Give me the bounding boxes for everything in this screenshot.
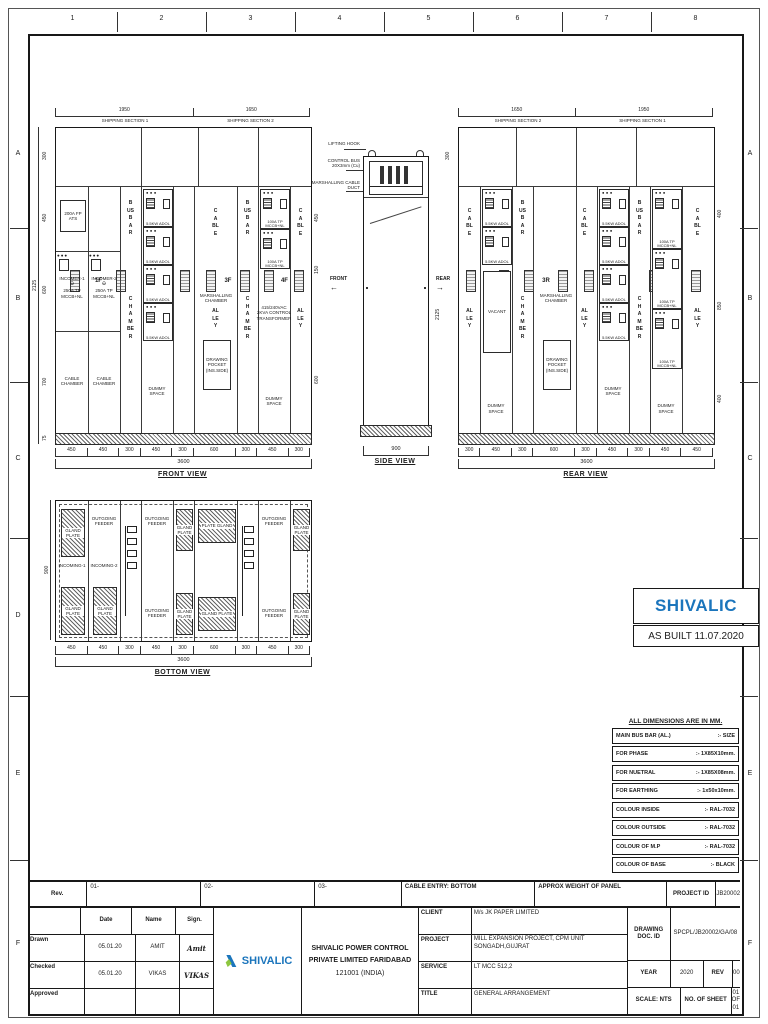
module-label: 5.5KW ADOL [145,298,171,302]
module-rating: 100A TP MCCB+NL [654,300,680,308]
logo-text: SHIVALIC [242,955,293,967]
grid-row-a-right: A [742,150,758,157]
project-row: PROJECT MILL EXPANSION PROJECT, CPM UNIT… [419,935,627,962]
company-line-2: PRIVATE LIMITED FARIDABAD [309,956,411,965]
front-total-width: 3600 [55,459,312,469]
drawn-row: Drawn 05.01.20 AMIT Amit [28,935,213,962]
rear-chamber-word-1: CHAMBER [519,296,526,341]
feeder-module: ●●● 5.5KW ADOL [143,303,173,341]
outgoing-feeder-label: OUTGOING FEEDER [90,509,118,533]
louver-icon [264,270,274,292]
side-view-title: SIDE VIEW [355,458,435,465]
as-built-box: AS BUILT 11.07.2020 [633,625,759,647]
sign-table: Date Name Sign. Drawn 05.01.20 AMIT Amit… [28,908,214,1014]
cable-entry-cell: CABLE ENTRY: BOTTOM [402,882,535,908]
louver-icon [180,270,190,292]
outgoing-feeder-label: OUTGOING FEEDER [260,601,288,625]
outgoing-feeder-label: OUTGOING FEEDER [143,601,171,625]
scale-row: SCALE: NTS NO. OF SHEET 01 OF 01 [628,988,740,1014]
incomer-1: ●●● INCOMER-1 ⎉ 250A TP MCCB+NL [57,253,87,329]
rear-busbar-word-2: BUSBAR [636,200,643,238]
grid-row-f-left: F [10,940,26,947]
lifting-hook-label: LIFTING HOOK [316,141,360,146]
grid-col-8: 8 [651,15,740,22]
louver-icon [691,270,701,292]
rear-drawing-pocket: DRAWING POCKET (INS.SIDE) [543,340,571,390]
front-chamber-word-2: CHAMBER [244,296,251,341]
incoming-1-label: INCOMING-1 [57,559,87,573]
spec-row: COLOUR INSIDE:- RAL-7032 [612,802,739,818]
rear-total-width: 3600 [458,459,715,469]
spec-row: COLOUR OF M.P:- RAL-7032 [612,839,739,855]
gland-plate: GLAND PLATE [176,593,193,635]
grid-row-c-left: C [10,455,26,462]
company-line-1: SHIVALIC POWER CONTROL [311,944,408,953]
front-arrow-icon: ← [330,284,338,292]
approx-weight-cell: APPROX WEIGHT OF PANEL [535,882,666,908]
gland-plate: GLAND PLATE [176,509,193,551]
feeder-module: ●●● 5.5KW ADOL [143,189,173,227]
company-logo-cell: SHIVALIC [214,908,302,1014]
gland-plate: GLAND PLATE [293,509,310,551]
side-view-frame [363,156,429,427]
front-busbar-word: BUSBAR [127,200,134,238]
bottom-view-title: BOTTOM VIEW [55,669,310,676]
drawing-sheet: 1 2 3 4 5 6 7 8 A B C D E F A B C D E F … [0,0,768,1024]
spec-row: COLOUR OUTSIDE:- RAL-7032 [612,820,739,836]
rear-view-title: REAR VIEW [458,471,713,478]
front-view-frame: 1F 2F 3F 4F 200A FP ATS [55,127,312,435]
incomer-1-rating: 250A TP MCCB+NL [57,288,87,298]
service-row: SERVICE LT MCC 512,2 [419,962,627,989]
grid-row-b-left: B [10,295,26,302]
module-label: 5.5KW ADOL [601,260,627,264]
title-block-main: Date Name Sign. Drawn 05.01.20 AMIT Amit… [28,906,740,1014]
vacant-box: VACANT [483,271,511,353]
cable-chamber-2: CABLE CHAMBER [89,331,119,431]
front-right-dim-150: 150 [314,250,320,290]
as-built-text: AS BUILT 11.07.2020 [648,631,744,642]
front-left-dim-700: 700 [42,330,48,433]
front-top-dim-2: 1650 [193,108,311,117]
rear-right-dim-400: 400 [717,185,723,243]
rear-busbar-word-1: BUSBAR [519,200,526,238]
front-cable-word-2: CABLE [297,208,304,238]
louver-icon [294,270,304,292]
doc-table: DRAWING DOC. ID SPCPL/JB20002/GA/08 YEAR… [628,908,740,1014]
checked-signature: VIKAS [180,962,213,988]
grid-col-1: 1 [28,15,117,22]
front-shipping-section-1: SHIPPING SECTION 1 [70,118,180,123]
rear-view-frame: 4R 3R 2R 1R CABLE ALLEY [458,127,715,435]
rear-dummy-space-1: DUMMY SPACE [482,386,510,431]
rear-top-dim-2: 1950 [575,108,714,117]
module-label: 5.5KW ADOL [145,222,171,226]
grid-row-b-right: B [742,295,758,302]
busbar-riser-icon [242,526,256,616]
sign-header: Sign. [176,908,213,934]
spec-title: ALL DIMENSIONS ARE IN MM. [612,718,739,725]
name-header: Name [132,908,176,934]
module-label: 5.5KW ADOL [145,336,171,340]
client-row: CLIENT M/s JK PAPER LIMITED [419,908,627,935]
ats-box: 200A FP ATS [60,200,86,232]
feeder-module: ●●● 100A TP MCCB+NL [652,309,682,369]
rev-02-cell: 02- [201,882,315,908]
rear-dummy-space-2: DUMMY SPACE [599,356,627,426]
module-label: 5.5KW ADOL [601,336,627,340]
module-label: 5.5KW ADOL [484,260,510,264]
rear-base-channel [458,433,715,445]
louver-icon [466,270,476,292]
project-id-value-cell: JB20002 [716,882,740,908]
front-top-dim-1: 1950 [55,108,193,117]
cable-chamber-1: CABLE CHAMBER [57,331,87,431]
marshalling-duct-label: MARSHALLING CABLE DUCT [310,180,360,191]
spec-row: COLOUR OF BASE:- BLACK [612,857,739,873]
grid-row-a-left: A [10,150,26,157]
spec-row: FOR EARTHING:- 1x50x10mm. [612,783,739,799]
feeder-module: ●●● 5.5KW ADOL [599,265,629,303]
grid-row-e-left: E [10,770,26,777]
module-rating: 100A TP MCCB+NL [654,360,680,368]
rear-left-dim-300: 300 [445,127,451,185]
feeder-module: ●●● 5.5KW ADOL [143,265,173,303]
marshalling-chamber-label: MARSHALLING CHAMBER [196,288,236,308]
grid-col-4: 4 [295,15,384,22]
incomer-2-rating: 250A TP MCCB+NL [89,288,119,298]
title-row: TITLE GENERAL ARRANGEMENT [419,989,627,1015]
feeder-module: ●●● 100A TP MCCB+NL [260,189,290,229]
front-left-dim-450: 450 [42,185,48,250]
feeder-module: ●●● 5.5KW ADOL [143,227,173,265]
rear-marshalling-label: MARSHALLING CHAMBER [536,288,576,308]
panel-id: 4F [281,278,288,284]
front-dummy-space-2: DUMMY SPACE [260,376,288,426]
grid-col-5: 5 [384,15,473,22]
grid-col-7: 7 [562,15,651,22]
module-label: 5.5KW ADOL [601,222,627,226]
spec-row: FOR PHASE:- 1X85X10mm. [612,746,739,762]
rear-top-dim-1: 1650 [458,108,575,117]
year-row: YEAR 2020 REV 00 [628,961,740,988]
plate-gland: PLATE GLAND [198,509,236,543]
module-label: 5.5KW ADOL [484,222,510,226]
outgoing-feeder-label: OUTGOING FEEDER [260,509,288,533]
front-overall-height: 2125 [32,127,39,444]
grid-col-2: 2 [117,15,206,22]
feeder-module: ●●● 5.5KW ADOL [482,189,512,227]
front-base-channel [55,433,312,445]
louver-icon [584,270,594,292]
spec-row: MAIN BUS BAR (AL.):- SIZE [612,728,739,744]
rear-alley-word-1: ALLEY [466,308,473,331]
revision-strip: Rev. 01- 02- 03- CABLE ENTRY: BOTTOM APP… [28,880,740,908]
approved-row: Approved [28,989,213,1015]
rear-alley-word-3: ALLEY [694,308,701,331]
module-rating: 100A TP MCCB+NL [262,220,288,228]
front-alley-word: ALLEY [212,308,219,331]
rear-right-dim-400b: 400 [717,368,723,430]
control-transformer-label: 415/240VAC 2KVA CONTROL TRANSFORMER [259,293,289,333]
outgoing-feeder-label: OUTGOING FEEDER [143,509,171,533]
brand-box: SHIVALIC [633,588,759,624]
front-view-title: FRONT VIEW [55,471,310,478]
incoming-2-label: INCOMING-2 [89,559,119,573]
panel-id: 3F [224,278,231,284]
gland-plate: GLAND PLATE [198,597,236,631]
rear-right-dim-850: 850 [717,243,723,368]
feeder-module: ●●● 5.5KW ADOL [599,303,629,341]
feeder-module: ●●● 100A TP MCCB+NL [652,249,682,309]
rear-shipping-section-1: SHIPPING SECTION 1 [580,118,705,123]
grid-row-c-right: C [742,455,758,462]
front-left-dim-75: 75 [42,431,48,445]
gland-plate: GLAND PLATE [61,587,85,635]
grid-col-6: 6 [473,15,562,22]
rear-chamber-word-2: CHAMBER [636,296,643,341]
company-name-cell: SHIVALIC POWER CONTROL PRIVATE LIMITED F… [302,908,419,1014]
project-id-label-cell: PROJECT ID [667,882,717,908]
gland-plate: GLAND PLATE [293,593,310,635]
checked-row: Checked 05.01.20 VIKAS VIKAS [28,962,213,989]
side-bottom-dim: 900 [363,446,429,456]
shivalic-logo-icon [223,953,239,969]
side-base-channel [360,425,432,437]
module-rating: 100A TP MCCB+NL [262,260,288,268]
spec-row: FOR NUETRAL:- 1X85X08mm. [612,765,739,781]
front-shipping-section-2: SHIPPING SECTION 2 [198,118,303,123]
module-label: 5.5KW ADOL [145,260,171,264]
rear-cable-word-2: CABLE [581,208,588,238]
bottom-left-dim-900: 900 [44,500,51,640]
incomer-2: ●●● INCOMER-2 ⎉ 250A TP MCCB+NL [89,253,119,329]
front-cable-word: CABLE [212,208,219,238]
grid-row-d-left: D [10,612,26,619]
rear-shipping-section-2: SHIPPING SECTION 2 [468,118,568,123]
rear-dummy-space-3: DUMMY SPACE [652,386,680,431]
rear-alley-word-2: ALLEY [581,308,588,331]
feeder-module: ●●● 100A TP MCCB+NL [652,189,682,249]
bottom-view-frame: GLAND PLATE INCOMING-1 GLAND PLATE OUTGO… [55,500,312,642]
front-right-dim-600: 600 [314,330,320,430]
info-table: CLIENT M/s JK PAPER LIMITED PROJECT MILL… [419,908,628,1014]
module-label: 5.5KW ADOL [601,298,627,302]
grid-row-e-right: E [742,770,758,777]
panel-id: 3R [542,278,550,284]
rear-top-dims: 1650 1950 [458,108,713,117]
gland-plate: GLAND PLATE [93,587,117,635]
front-left-dim-600: 600 [42,250,48,330]
feeder-module: ●●● 5.5KW ADOL [482,227,512,265]
rear-cable-word-3: CABLE [694,208,701,238]
doc-id-row: DRAWING DOC. ID SPCPL/JB20002/GA/08 [628,908,740,961]
front-top-dims: 1950 1650 [55,108,310,117]
rev-03-cell: 03- [315,882,402,908]
gland-plate: GLAND PLATE [61,509,85,557]
brand-name: SHIVALIC [655,596,737,616]
bottom-view-dims: 450 450 300 450 300 600 300 450 300 [55,646,310,655]
control-bus-label: CONTROL BUS 20X3mm (Cu) [310,158,360,169]
grid-row-f-right: F [742,940,758,947]
rear-bottom-dims: 300 450 300 600 300 450 300 450 450 [458,448,713,457]
rear-overall-height: 2125 [435,185,441,444]
front-alley-word-2: ALLEY [297,308,304,331]
louver-icon [240,270,250,292]
drawing-pocket: DRAWING POCKET (INS.SIDE) [203,340,231,390]
front-right-dim-450: 450 [314,185,320,250]
feeder-module: ●●● 5.5KW ADOL [599,189,629,227]
front-chamber-word: CHAMBER [127,296,134,341]
spec-table: ALL DIMENSIONS ARE IN MM. MAIN BUS BAR (… [612,718,739,873]
grid-col-3: 3 [206,15,295,22]
front-left-dim-300: 300 [42,127,48,185]
date-header: Date [81,908,132,934]
rear-cable-word-1: CABLE [466,208,473,238]
front-dummy-space-1: DUMMY SPACE [143,356,171,426]
bottom-total-width: 3600 [55,657,312,667]
front-bottom-dims: 450 450 300 450 300 600 300 450 300 [55,448,310,457]
module-rating: 100A TP MCCB+NL [654,240,680,248]
side-front-label: FRONT [330,276,347,282]
rev-01-cell: 01- [87,882,201,908]
feeder-module: ●●● 100A TP MCCB+NL [260,229,290,269]
busbar-riser-icon [125,526,139,616]
rev-label-cell: Rev. [28,882,87,908]
front-busbar-word-2: BUSBAR [244,200,251,238]
feeder-module: ●●● 5.5KW ADOL [599,227,629,265]
company-line-3: 121001 (INDIA) [336,969,385,978]
drawn-signature: Amit [180,935,213,961]
